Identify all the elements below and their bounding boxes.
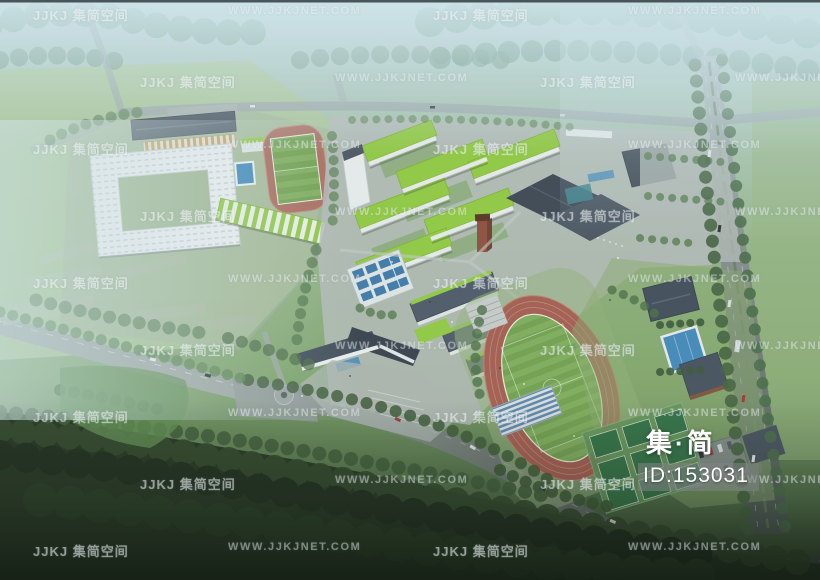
aerial-campus-render [0, 0, 820, 580]
brand-overlay: 集·简 ID:153031 [638, 423, 759, 491]
screenshot-root: JJKJ 集简空间WWW.JJKJNET.COMJJKJ 集简空间WWW.JJK… [0, 0, 820, 580]
brand-title: 集·简 [646, 423, 759, 460]
brand-id-badge: ID:153031 [638, 463, 759, 491]
top-edge-bar [0, 0, 820, 3]
